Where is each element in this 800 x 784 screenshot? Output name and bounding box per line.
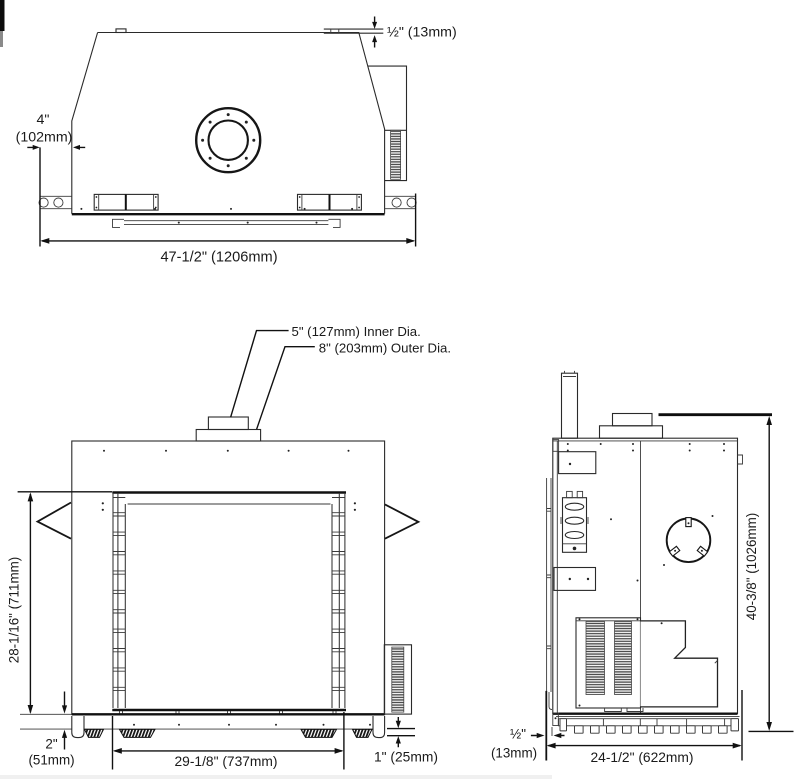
svg-text:4": 4" [37, 112, 50, 128]
svg-text:5" (127mm) Inner Dia.: 5" (127mm) Inner Dia. [292, 324, 421, 339]
svg-text:(102mm): (102mm) [16, 130, 73, 146]
svg-text:½": ½" [510, 727, 526, 742]
svg-text:40-3/8" (1026mm): 40-3/8" (1026mm) [744, 513, 759, 620]
svg-text:47-1/2" (1206mm): 47-1/2" (1206mm) [160, 250, 277, 266]
svg-text:½" (13mm): ½" (13mm) [387, 25, 457, 41]
svg-text:24-1/2" (622mm): 24-1/2" (622mm) [590, 750, 693, 765]
svg-text:28-1/16" (711mm): 28-1/16" (711mm) [7, 557, 22, 663]
svg-text:(13mm): (13mm) [491, 746, 537, 761]
svg-text:29-1/8" (737mm): 29-1/8" (737mm) [174, 754, 277, 769]
svg-text:2": 2" [45, 737, 57, 752]
svg-text:1" (25mm): 1" (25mm) [374, 750, 438, 765]
svg-text:(51mm): (51mm) [28, 753, 74, 768]
svg-text:8" (203mm) Outer Dia.: 8" (203mm) Outer Dia. [319, 341, 451, 356]
